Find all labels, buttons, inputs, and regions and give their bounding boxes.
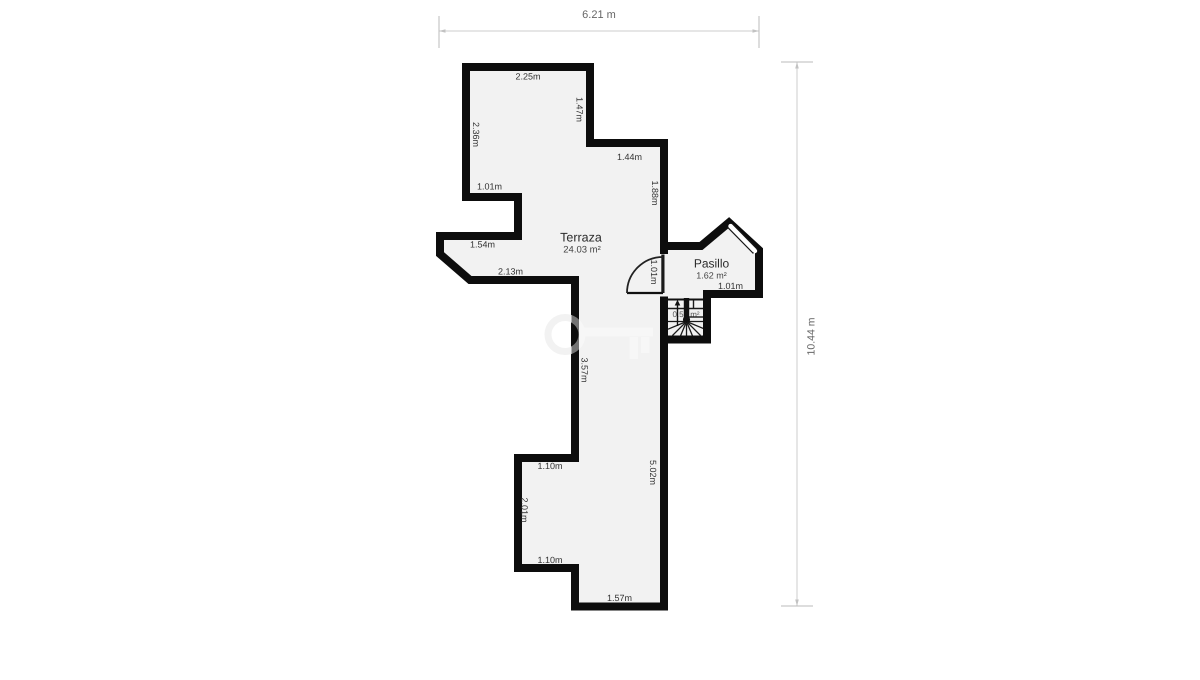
svg-text:1.01m: 1.01m: [649, 259, 659, 284]
svg-text:5.02m: 5.02m: [648, 460, 658, 485]
svg-text:1.01m: 1.01m: [718, 281, 743, 291]
svg-text:1.54m: 1.54m: [470, 240, 495, 250]
svg-text:6.21 m: 6.21 m: [582, 9, 616, 21]
svg-text:2.25m: 2.25m: [515, 72, 540, 82]
svg-text:1.10m: 1.10m: [537, 461, 562, 471]
svg-text:10.44 m: 10.44 m: [806, 317, 818, 355]
svg-text:1.62 m²: 1.62 m²: [696, 271, 727, 281]
svg-text:2.01m: 2.01m: [520, 497, 530, 522]
svg-text:2.13m: 2.13m: [498, 267, 523, 277]
svg-text:Terraza: Terraza: [560, 231, 602, 245]
svg-text:1.44m: 1.44m: [617, 152, 642, 162]
svg-text:24.03 m²: 24.03 m²: [563, 244, 601, 255]
svg-text:1.10m: 1.10m: [537, 555, 562, 565]
svg-text:1.88m: 1.88m: [650, 180, 660, 205]
svg-text:Pasillo: Pasillo: [694, 257, 730, 271]
svg-text:1.01m: 1.01m: [477, 182, 502, 192]
svg-text:1.47m: 1.47m: [575, 97, 585, 122]
svg-text:2.36m: 2.36m: [471, 122, 481, 147]
svg-text:3.57m: 3.57m: [580, 357, 590, 382]
svg-text:1.57m: 1.57m: [607, 593, 632, 603]
